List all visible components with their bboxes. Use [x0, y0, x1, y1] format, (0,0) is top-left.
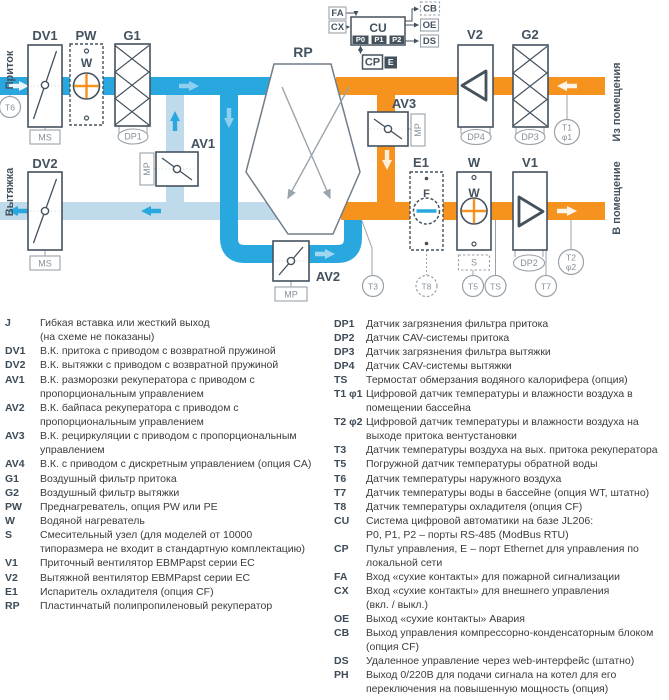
legend-abbr: PW: [5, 500, 40, 514]
legend-abbr: T2 φ2: [334, 415, 366, 429]
legend-text: помещении бассейна: [366, 401, 669, 415]
legend-text: Гибкая вставка или жесткий выход: [40, 316, 333, 330]
fa-port: FA: [331, 8, 343, 19]
legend-row: AV3В.К. рециркуляции с приводом с пропор…: [5, 429, 333, 443]
legend-row: AV2В.К. байпаса рекуператора с приводом …: [5, 401, 333, 415]
phi1-sensor: φ1: [562, 132, 573, 142]
legend-row: AV1В.К. разморозки рекуператора с привод…: [5, 373, 333, 387]
legend-row: G2Воздушный фильтр вытяжки: [5, 486, 333, 500]
phi2-sensor: φ2: [566, 262, 577, 272]
legend-text: Преднагреватель, опция PW или PE: [40, 500, 333, 514]
legend-abbr: [334, 640, 366, 654]
cp-panel: CP: [365, 57, 380, 69]
legend-abbr: V2: [5, 571, 40, 585]
legend-text: переключения на повышенную мощность (опц…: [366, 682, 669, 696]
v1-label: V1: [522, 155, 538, 170]
legend-row: переключения на повышенную мощность (опц…: [334, 682, 669, 696]
legend-text: Смесительный узел (для моделей от 10000: [40, 528, 333, 542]
cb-port: CB: [423, 4, 437, 15]
dp4-sensor: DP4: [467, 132, 485, 142]
legend-abbr: J: [5, 316, 40, 330]
legend-row: G1Воздушный фильтр притока: [5, 472, 333, 486]
legend-text: Воздушный фильтр притока: [40, 472, 333, 486]
legend-row: T3Датчик температуры воздуха на вых. при…: [334, 443, 669, 457]
legend-row: типоразмера не входит в стандартную комп…: [5, 542, 333, 556]
legend-abbr: [334, 598, 366, 612]
dp2-sensor: DP2: [520, 258, 538, 268]
svg-text:T3: T3: [368, 282, 378, 292]
legend-text: Датчик температуры воздуха на вых. прито…: [366, 443, 669, 457]
legend-text: (на схеме не показаны): [40, 330, 333, 344]
legend-row: DSУдаленное управление через web-интерфе…: [334, 654, 669, 668]
from-room-label: Из помещения: [611, 62, 623, 141]
legend-row: DV2В.К. вытяжки с приводом с возвратной …: [5, 358, 333, 372]
legend-abbr: CX: [334, 584, 366, 598]
legend-text: (вкл. / выкл.): [366, 598, 669, 612]
legend-text: Вход «сухие контакты» для внешнего управ…: [366, 584, 669, 598]
legend-abbr: [334, 556, 366, 570]
legend-text: В.К. вытяжки с приводом с возвратной пру…: [40, 358, 333, 372]
legend-row: CXВход «сухие контакты» для внешнего упр…: [334, 584, 669, 598]
legend-text: пропорциональным управлением: [40, 415, 333, 429]
legend-abbr: [334, 682, 366, 696]
legend-text: выходе притока вентустановки: [366, 429, 669, 443]
rp-label: RP: [293, 44, 312, 60]
pw-label: PW: [76, 28, 98, 43]
legend-text: Приточный вентилятор EBMPapst серии EC: [40, 556, 333, 570]
dp1-sensor: DP1: [124, 132, 142, 142]
p0-port: P0: [356, 35, 365, 44]
legend-abbr: PH: [334, 668, 366, 682]
preheater-pw: W PW: [70, 28, 103, 125]
damper-dv1: DV1 MS: [28, 28, 62, 144]
legend-text: Датчик температуры наружного воздуха: [366, 472, 669, 486]
g1-label: G1: [123, 28, 140, 43]
svg-text:T5: T5: [468, 282, 478, 292]
legend-abbr: [5, 443, 40, 457]
legend-text: Цифровой датчик температуры и влажности …: [366, 415, 669, 429]
legend-row: T2 φ2Цифровой датчик температуры и влажн…: [334, 415, 669, 429]
s-box-label: S: [471, 258, 477, 268]
legend-abbr: AV1: [5, 373, 40, 387]
legend-text: управлением: [40, 443, 333, 457]
legend-text: Испаритель охладителя (опция CF): [40, 585, 333, 599]
legend-abbr: [5, 415, 40, 429]
legend-abbr: T7: [334, 486, 366, 500]
fan-v1: V1 DP2: [513, 155, 547, 271]
legend-row: AV4В.К. с приводом с дискретным управлен…: [5, 457, 333, 471]
t1-sensor: T1: [562, 123, 572, 133]
legend-text: Пульт управления, E – порт Ethernet для …: [366, 542, 669, 556]
supply-inlet-label: Приток: [4, 50, 16, 89]
legend-row: T1 φ1Цифровой датчик температуры и влажн…: [334, 387, 669, 401]
legend-abbr: T8: [334, 500, 366, 514]
legend-row: T5Погружной датчик температуры обратной …: [334, 457, 669, 471]
legend-text: Выход 0/220В для подачи сигнала на котел…: [366, 668, 669, 682]
filter-g2: G2 DP3: [513, 27, 548, 145]
legend-row: PHВыход 0/220В для подачи сигнала на кот…: [334, 668, 669, 682]
sensor-ts: TS: [485, 276, 506, 297]
legend-row: CUСистема цифровой автоматики на базе JL…: [334, 514, 669, 528]
legend-text: Цифровой датчик температуры и влажности …: [366, 387, 669, 401]
legend-abbr: W: [5, 514, 40, 528]
sensor-t6: T6: [0, 97, 21, 118]
legend-row: FAВход «сухие контакты» для пожарной сиг…: [334, 570, 669, 584]
sensor-t1-phi1: T1 φ1: [555, 120, 580, 145]
legend-text: Выход «сухие контакты» Авария: [366, 612, 669, 626]
oe-port: OE: [423, 20, 437, 31]
legend-text: Датчик загрязнения фильтра вытяжки: [366, 345, 669, 359]
legend-text: В.К. рециркуляции с приводом с пропорцио…: [40, 429, 333, 443]
legend-abbr: [334, 528, 366, 542]
legend-row: E1Испаритель охладителя (опция CF): [5, 585, 333, 599]
legend-row: DP4Датчик CAV-системы вытяжки: [334, 359, 669, 373]
mp-box-label: MP: [284, 290, 298, 300]
svg-text:TS: TS: [490, 282, 501, 292]
legend-row: PWПреднагреватель, опция PW или PE: [5, 500, 333, 514]
legend-row: выходе притока вентустановки: [334, 429, 669, 443]
e1-label: E1: [413, 155, 429, 170]
ms-box-label: MS: [38, 133, 52, 143]
legend-abbr: [334, 429, 366, 443]
g2-label: G2: [521, 27, 538, 42]
t6-sensor: T6: [5, 103, 15, 113]
legend-abbr: DP1: [334, 317, 366, 331]
legend-abbr: DV2: [5, 358, 40, 372]
legend-abbr: AV4: [5, 457, 40, 471]
legend-abbr: E1: [5, 585, 40, 599]
legend-abbr: DS: [334, 654, 366, 668]
legend-abbr: DP2: [334, 331, 366, 345]
legend-row: DP1Датчик загрязнения фильтра притока: [334, 317, 669, 331]
legend-abbr: DP3: [334, 345, 366, 359]
legend-abbr: DP4: [334, 359, 366, 373]
legend-abbr: S: [5, 528, 40, 542]
legend-abbr: AV3: [5, 429, 40, 443]
legend-abbr: TS: [334, 373, 366, 387]
sensor-t3: T3: [363, 276, 384, 297]
ethernet-port: E: [388, 57, 394, 67]
legend-abbr: CB: [334, 626, 366, 640]
heater-w: W W S: [457, 155, 491, 270]
t2-sensor: T2: [566, 253, 576, 263]
damper-av3: MP AV3: [368, 96, 425, 146]
legend-row: пропорциональным управлением: [5, 415, 333, 429]
svg-text:T7: T7: [541, 282, 551, 292]
legend-column-right: DP1Датчик загрязнения фильтра притокаDP2…: [334, 317, 669, 696]
to-room-label: В помещение: [611, 161, 623, 234]
w-label: W: [468, 155, 481, 170]
legend-row: RPПластинчатый полипропиленовый рекупера…: [5, 599, 333, 613]
sensor-t5: T5: [463, 276, 484, 297]
legend-row: DV1В.К. притока с приводом с возвратной …: [5, 344, 333, 358]
legend-row: пропорциональным управлением: [5, 387, 333, 401]
legend-text: Воздушный фильтр вытяжки: [40, 486, 333, 500]
control-unit: FA CX CU P0 P1 P2 CB OE DS CP E: [329, 2, 440, 69]
legend-abbr: G2: [5, 486, 40, 500]
v2-label: V2: [467, 27, 483, 42]
legend-text: Водяной нагреватель: [40, 514, 333, 528]
p2-port: P2: [392, 35, 401, 44]
dv1-label: DV1: [32, 28, 57, 43]
legend-row: T7Датчик температуры воды в бассейне (оп…: [334, 486, 669, 500]
legend-row: помещении бассейна: [334, 401, 669, 415]
exhaust-outlet-label: Вытяжка: [4, 167, 16, 216]
legend-text: Пластинчатый полипропиленовый рекуперато…: [40, 599, 333, 613]
legend-abbr: DV1: [5, 344, 40, 358]
legend-row: V2Вытяжной вентилятор EBMPapst серии EC: [5, 571, 333, 585]
legend-abbr: FA: [334, 570, 366, 584]
cooler-e1: F E1: [410, 155, 443, 250]
av2-label: AV2: [316, 269, 340, 284]
legend-row: (вкл. / выкл.): [334, 598, 669, 612]
legend-text: Термостат обмерзания водяного калорифера…: [366, 373, 669, 387]
legend-row: JГибкая вставка или жесткий выход: [5, 316, 333, 330]
legend-text: Вытяжной вентилятор EBMPapst серии EC: [40, 571, 333, 585]
legend-row: (опция CF): [334, 640, 669, 654]
legend-row: T6Датчик температуры наружного воздуха: [334, 472, 669, 486]
legend-text: Система цифровой автоматики на базе JL20…: [366, 514, 669, 528]
legend-text: (опция CF): [366, 640, 669, 654]
pw-w-symbol: W: [81, 56, 93, 70]
legend-text: Удаленное управление через web-интерфейс…: [366, 654, 669, 668]
av1-label: AV1: [191, 136, 215, 151]
legend-abbr: T5: [334, 457, 366, 471]
sensor-t7: T7: [536, 276, 557, 297]
legend-abbr: [334, 401, 366, 415]
cu-label: CU: [369, 21, 386, 35]
legend-abbr: CU: [334, 514, 366, 528]
legend-row: управлением: [5, 443, 333, 457]
legend-abbr: AV2: [5, 401, 40, 415]
legend-abbr: T6: [334, 472, 366, 486]
svg-text:T8: T8: [422, 282, 432, 292]
legend-text: Датчик температуры воды в бассейне (опци…: [366, 486, 669, 500]
legend-text: Вход «сухие контакты» для пожарной сигна…: [366, 570, 669, 584]
legend-row: CBВыход управления компрессорно-конденса…: [334, 626, 669, 640]
legend-text: Датчик CAV-системы вытяжки: [366, 359, 669, 373]
legend-text: В.К. притока с приводом с возвратной пру…: [40, 344, 333, 358]
legend-abbr: [5, 387, 40, 401]
legend-row: DP2Датчик CAV-системы притока: [334, 331, 669, 345]
cx-port: CX: [331, 22, 345, 33]
legend-row: WВодяной нагреватель: [5, 514, 333, 528]
dv2-label: DV2: [32, 156, 57, 171]
mp-box-label: MP: [142, 162, 152, 176]
legend-text: P0, P1, P2 – порты RS-485 (ModBus RTU): [366, 528, 669, 542]
legend-text: В.К. разморозки рекуператора с приводом …: [40, 373, 333, 387]
legend-abbr: V1: [5, 556, 40, 570]
ms-box-label: MS: [38, 259, 52, 269]
legend-abbr: CP: [334, 542, 366, 556]
legend-abbr: OE: [334, 612, 366, 626]
legend-text: В.К. байпаса рекуператора с приводом с: [40, 401, 333, 415]
legend-abbr: [5, 330, 40, 344]
legend-row: SСмесительный узел (для моделей от 10000: [5, 528, 333, 542]
ds-port: DS: [423, 36, 436, 47]
hvac-schematic: RP DV1 MS W PW G: [0, 0, 669, 319]
filter-g1: G1 DP1: [115, 28, 150, 144]
sensor-t8: T8: [416, 276, 437, 297]
legend-abbr: RP: [5, 599, 40, 613]
legend-text: В.К. с приводом с дискретным управлением…: [40, 457, 333, 471]
legend-row: CPПульт управления, E – порт Ethernet дл…: [334, 542, 669, 556]
legend-abbr: T3: [334, 443, 366, 457]
legend-abbr: [5, 542, 40, 556]
legend-text: Датчик температуры охладителя (опция CF): [366, 500, 669, 514]
legend-text: Погружной датчик температуры обратной во…: [366, 457, 669, 471]
legend-row: T8Датчик температуры охладителя (опция C…: [334, 500, 669, 514]
legend-text: локальной сети: [366, 556, 669, 570]
dp3-sensor: DP3: [521, 132, 539, 142]
legend-column-left: JГибкая вставка или жесткий выход(на схе…: [5, 316, 333, 613]
legend-abbr: G1: [5, 472, 40, 486]
legend-row: локальной сети: [334, 556, 669, 570]
sensor-t2-phi2: T2 φ2: [559, 250, 584, 275]
legend-row: P0, P1, P2 – порты RS-485 (ModBus RTU): [334, 528, 669, 542]
legend-abbr: T1 φ1: [334, 387, 366, 401]
fan-v2: V2 DP4: [458, 27, 493, 145]
legend-row: (на схеме не показаны): [5, 330, 333, 344]
legend-row: TSТермостат обмерзания водяного калорифе…: [334, 373, 669, 387]
legend-row: V1Приточный вентилятор EBMPapst серии EC: [5, 556, 333, 570]
legend-row: DP3Датчик загрязнения фильтра вытяжки: [334, 345, 669, 359]
legend-text: типоразмера не входит в стандартную комп…: [40, 542, 333, 556]
av3-label: AV3: [392, 96, 416, 111]
p1-port: P1: [374, 35, 383, 44]
legend-text: Выход управления компрессорно-конденсато…: [366, 626, 669, 640]
legend-text: Датчик CAV-системы притока: [366, 331, 669, 345]
legend-row: OEВыход «сухие контакты» Авария: [334, 612, 669, 626]
legend-text: пропорциональным управлением: [40, 387, 333, 401]
legend-text: Датчик загрязнения фильтра притока: [366, 317, 669, 331]
mp-box-label: MP: [413, 123, 423, 137]
